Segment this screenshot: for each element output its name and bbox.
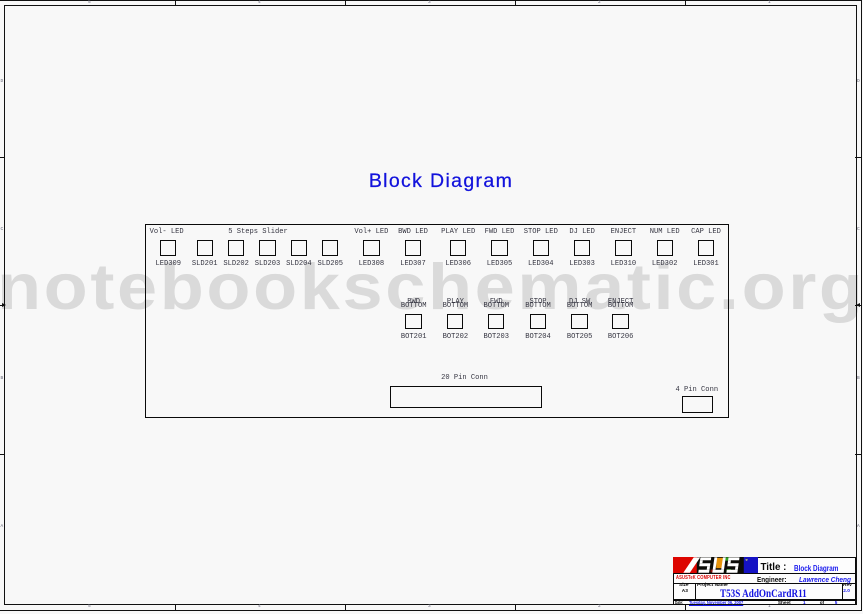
svg-text:R: R — [746, 559, 748, 562]
